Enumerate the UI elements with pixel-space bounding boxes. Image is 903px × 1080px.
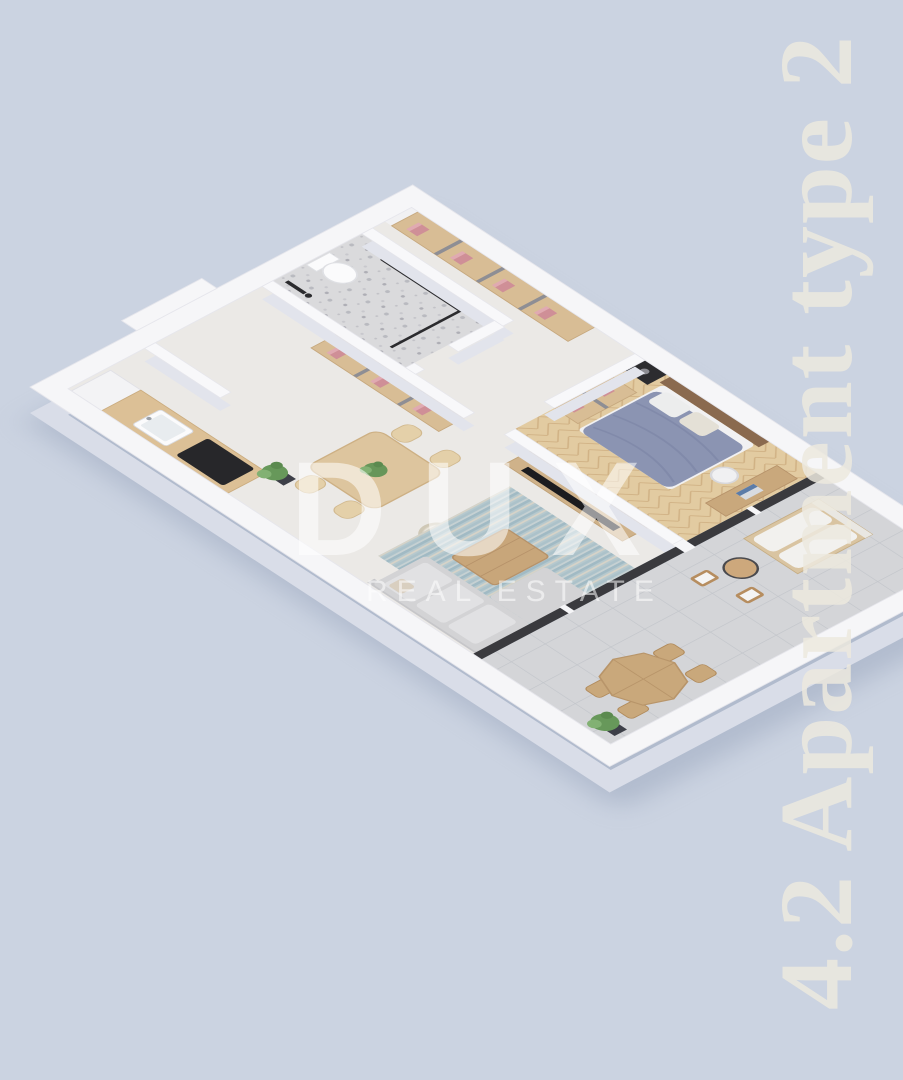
watermark-brand: DUX xyxy=(290,443,675,577)
render-canvas: DUX REAL ESTATE 4.2 Apartment type 2 xyxy=(0,0,903,1080)
watermark-tagline: REAL ESTATE xyxy=(366,577,663,607)
apartment-type-label: 4.2 Apartment type 2 xyxy=(765,34,869,1010)
